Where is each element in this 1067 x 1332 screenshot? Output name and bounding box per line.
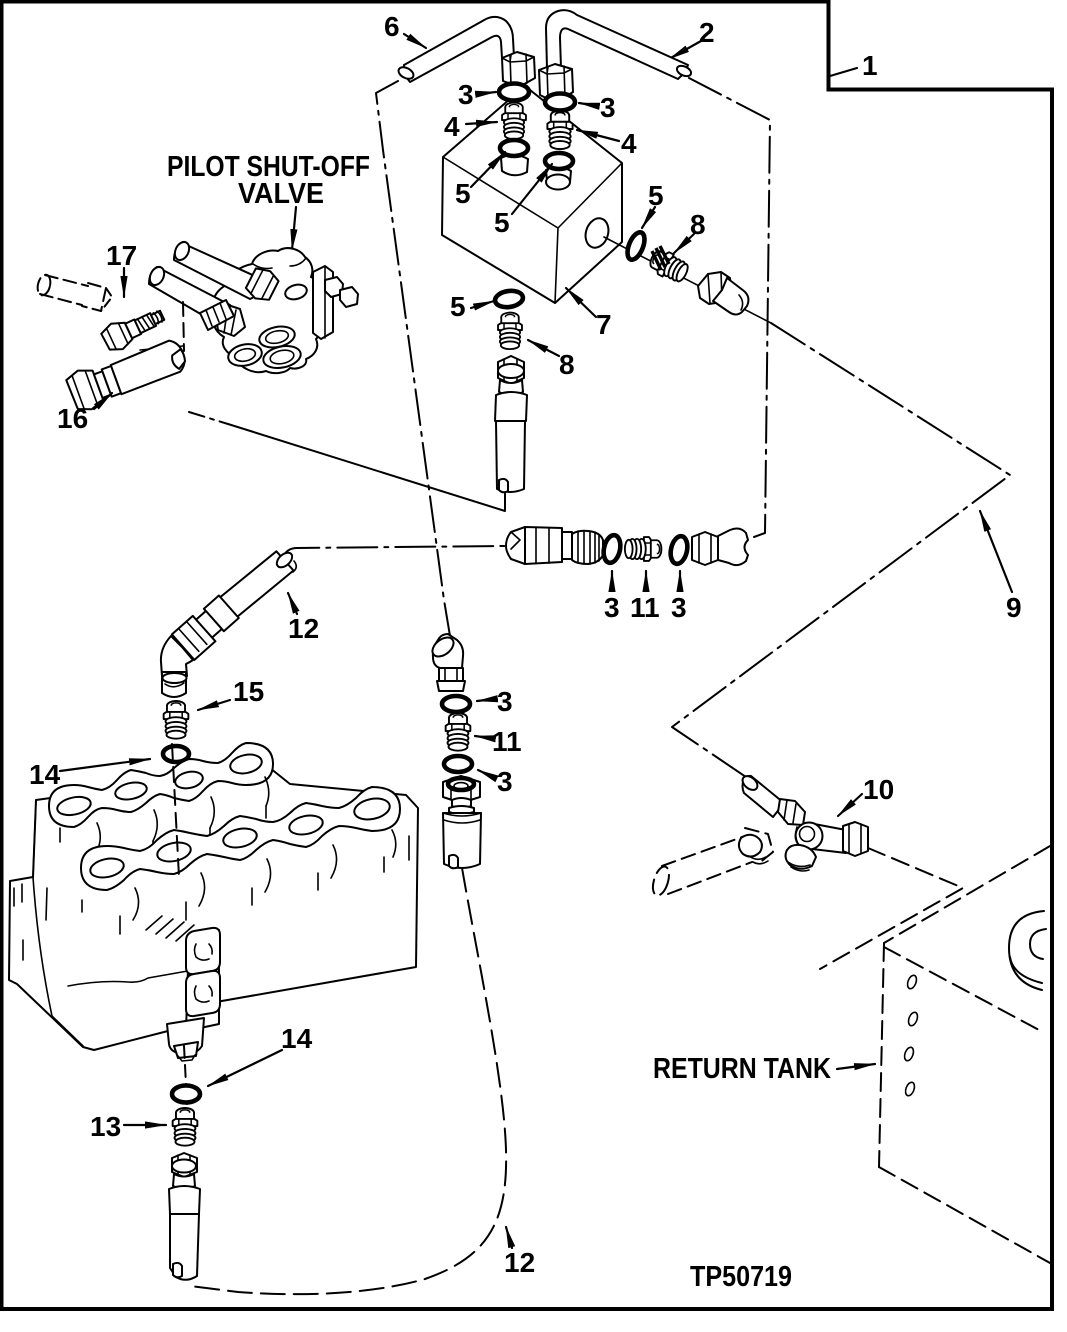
svg-text:3: 3 xyxy=(604,592,620,623)
svg-text:5: 5 xyxy=(494,207,510,238)
svg-text:3: 3 xyxy=(497,766,513,797)
svg-text:16: 16 xyxy=(57,403,88,434)
svg-text:11: 11 xyxy=(630,592,660,623)
svg-text:9: 9 xyxy=(1006,592,1022,623)
svg-text:8: 8 xyxy=(559,349,575,380)
svg-text:14: 14 xyxy=(29,759,61,790)
svg-text:5: 5 xyxy=(455,178,471,209)
svg-text:2: 2 xyxy=(699,17,715,48)
svg-text:11: 11 xyxy=(492,726,522,757)
svg-text:4: 4 xyxy=(621,128,637,159)
svg-text:15: 15 xyxy=(233,676,264,707)
svg-text:3: 3 xyxy=(458,79,474,110)
svg-text:13: 13 xyxy=(90,1111,121,1142)
svg-text:17: 17 xyxy=(106,240,137,271)
svg-text:3: 3 xyxy=(671,592,687,623)
svg-text:3: 3 xyxy=(600,92,616,123)
svg-text:TP50719: TP50719 xyxy=(690,1261,792,1293)
svg-text:14: 14 xyxy=(281,1023,313,1054)
svg-text:3: 3 xyxy=(497,686,513,717)
svg-text:10: 10 xyxy=(863,774,894,805)
svg-text:5: 5 xyxy=(450,291,466,322)
svg-text:12: 12 xyxy=(288,613,319,644)
svg-text:12: 12 xyxy=(504,1247,535,1278)
svg-text:7: 7 xyxy=(596,309,612,340)
svg-text:4: 4 xyxy=(444,111,460,142)
svg-text:RETURN TANK: RETURN TANK xyxy=(653,1053,831,1085)
svg-text:VALVE: VALVE xyxy=(238,178,324,210)
svg-text:1: 1 xyxy=(862,50,878,81)
svg-text:6: 6 xyxy=(384,11,400,42)
